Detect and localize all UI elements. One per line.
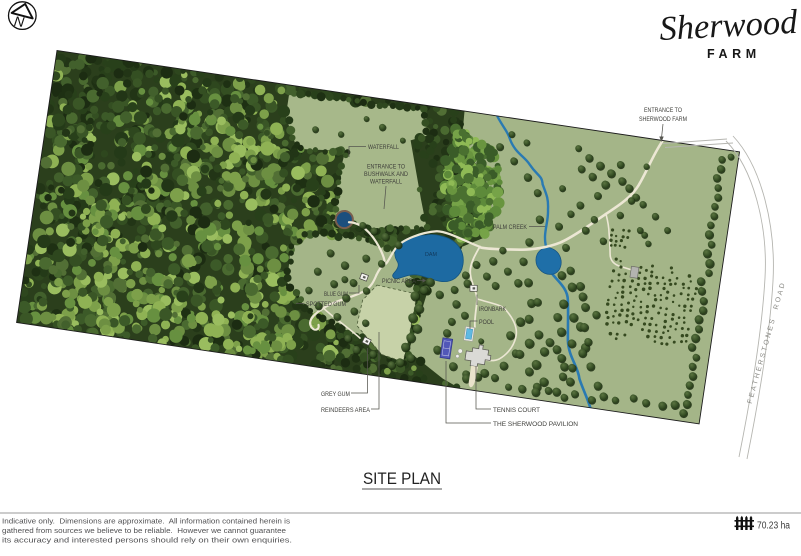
svg-text:its accuracy and interested pe: its accuracy and interested persons shou… (2, 536, 292, 545)
svg-text:ENTRANCE TO: ENTRANCE TO (644, 107, 682, 114)
svg-text:PICNIC AREA: PICNIC AREA (382, 278, 417, 285)
svg-text:70.23 ha: 70.23 ha (757, 521, 790, 532)
svg-text:FARM: FARM (707, 47, 761, 61)
svg-text:IRONBARK: IRONBARK (479, 306, 506, 313)
svg-text:GREY GUM: GREY GUM (321, 391, 350, 398)
svg-text:ENTRANCE TO: ENTRANCE TO (367, 164, 405, 171)
svg-text:DAM: DAM (425, 252, 437, 258)
svg-text:BUSHWALK AND: BUSHWALK AND (364, 171, 409, 178)
svg-text:POOL: POOL (479, 319, 495, 326)
svg-text:Sherwood: Sherwood (658, 3, 799, 48)
svg-text:gathered from sources we belie: gathered from sources we believe to be r… (2, 526, 286, 535)
svg-text:BLUE GUM: BLUE GUM (324, 291, 348, 298)
svg-text:SHERWOOD FARM: SHERWOOD FARM (639, 116, 687, 123)
svg-text:SITE PLAN: SITE PLAN (363, 469, 441, 488)
svg-text:SPOTTED GUM: SPOTTED GUM (306, 301, 346, 308)
svg-text:Indicative only. Dimensions a: Indicative only. Dimensions are approxim… (2, 517, 290, 526)
svg-text:THE SHERWOOD PAVILION: THE SHERWOOD PAVILION (493, 421, 578, 428)
svg-text:WATERFALL: WATERFALL (370, 179, 403, 186)
svg-text:REINDEERS AREA: REINDEERS AREA (321, 407, 371, 414)
svg-text:PALM CREEK: PALM CREEK (493, 224, 527, 231)
svg-text:WATERFALL: WATERFALL (368, 144, 400, 151)
svg-text:TENNIS COURT: TENNIS COURT (493, 407, 540, 414)
